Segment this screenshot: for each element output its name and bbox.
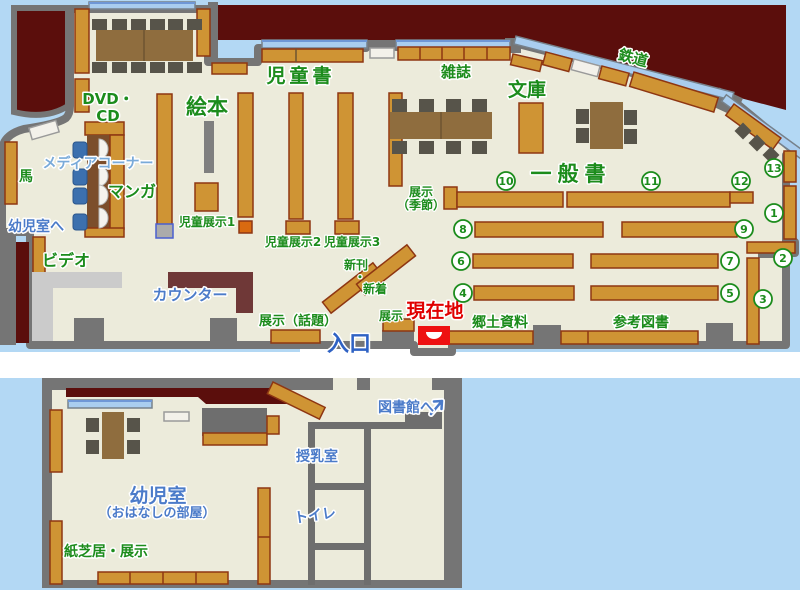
bunko-shelf: [519, 103, 543, 153]
topic-display-shelf: [271, 330, 320, 343]
wall-bump-2: [210, 318, 237, 342]
closed-area-left: [14, 8, 68, 115]
label-dvd-cd-line2: CD: [96, 107, 119, 125]
window: [68, 400, 152, 408]
bookshelf: [289, 93, 303, 219]
display-stand: [239, 221, 252, 233]
label-topic-display: 展示（話題）: [259, 313, 337, 329]
label-to-library: 図書館へ: [378, 399, 434, 416]
svg-text:11: 11: [643, 175, 658, 188]
shelf-number-13: 13: [765, 159, 783, 177]
label-new-books-2: 新着: [363, 281, 387, 296]
closed-strip: [66, 388, 198, 397]
label-horse: 馬: [19, 169, 33, 185]
svg-text:2: 2: [779, 252, 787, 265]
display-table-2: [286, 221, 310, 234]
center-shelf: [258, 488, 270, 584]
current-location-marker: [418, 326, 450, 345]
label-infant-room: 幼児室: [129, 484, 186, 507]
main-floor: DVD・ CD 絵本 児童書 雑誌 文庫 鉄道 一般書 メディアコーナー マンガ…: [0, 2, 800, 357]
svg-text:4: 4: [459, 287, 467, 300]
shelf-number-8: 8: [454, 220, 472, 238]
label-display: 展示: [379, 309, 403, 323]
shelf-number-9: 9: [735, 220, 753, 238]
label-to-infant-room: 幼児室へ: [8, 218, 64, 235]
svg-text:7: 7: [726, 255, 734, 268]
display-table-3: [335, 221, 359, 234]
bookshelf: [212, 63, 247, 74]
svg-text:3: 3: [759, 293, 767, 306]
bookshelf: [197, 9, 210, 56]
bookshelf: [203, 433, 267, 445]
shelf-number-11: 11: [642, 172, 660, 190]
label-magazines: 雑誌: [440, 63, 471, 81]
shelf-number-1: 1: [765, 204, 783, 222]
wall-step: [363, 40, 398, 48]
shelf-number-7: 7: [721, 252, 739, 270]
reference-shelves: [561, 331, 698, 344]
bookshelf: [75, 9, 89, 73]
label-video: ビデオ: [42, 251, 90, 270]
label-kamishibai-display: 紙芝居・展示: [64, 543, 148, 560]
shelf-number-3: 3: [754, 290, 772, 308]
label-seasonal-display-1: 展示: [409, 185, 433, 199]
label-dvd-cd-line1: DVD・: [82, 90, 134, 108]
annex-floor: 幼児室 （おはなしの部屋） 紙芝居・展示 授乳室 トイレ 図書館へ: [42, 378, 462, 588]
bookshelf: [157, 94, 172, 226]
label-nursing-room: 授乳室: [296, 448, 338, 465]
label-media-corner: メディアコーナー: [42, 155, 153, 172]
window: [89, 2, 195, 9]
display-table-1: [195, 183, 218, 211]
label-bunko: 文庫: [508, 78, 546, 101]
bench: [164, 412, 189, 421]
svg-text:5: 5: [726, 287, 734, 300]
label-counter: カウンター: [152, 286, 227, 304]
svg-text:9: 9: [740, 223, 748, 236]
shelf-number-4: 4: [454, 284, 472, 302]
shelf-number-5: 5: [721, 284, 739, 302]
wall-bump-5: [706, 323, 733, 342]
shelf-number-10: 10: [497, 172, 515, 190]
wall-bump-4: [533, 325, 561, 342]
svg-text:12: 12: [733, 175, 748, 188]
story-table: [102, 412, 124, 459]
label-current-location: 現在地: [406, 299, 463, 322]
shelf-number-12: 12: [732, 172, 750, 190]
label-manga: マンガ: [108, 182, 156, 201]
label-local-materials: 郷土資料: [472, 314, 528, 331]
structure-block: [202, 408, 267, 436]
wall-bump-3: [382, 330, 414, 343]
bookshelf: [238, 93, 253, 217]
svg-text:13: 13: [766, 162, 781, 175]
closed-bar-left-bottom: [16, 242, 29, 343]
bookshelf: [267, 416, 279, 434]
local-materials-shelf: [448, 331, 533, 344]
bookshelf: [5, 142, 17, 204]
label-children-display-1: 児童展示1: [178, 214, 235, 229]
library-floor-map: DVD・ CD 絵本 児童書 雑誌 文庫 鉄道 一般書 メディアコーナー マンガ…: [0, 0, 800, 590]
shelf-number-6: 6: [452, 252, 470, 270]
label-picture-books: 絵本: [186, 95, 228, 119]
svg-text:10: 10: [498, 175, 514, 188]
svg-text:1: 1: [770, 207, 778, 220]
label-children-display-2: 児童展示2: [264, 234, 321, 249]
bookshelf: [50, 410, 62, 472]
wall-left-bottom: [0, 232, 16, 345]
window: [262, 40, 367, 48]
wall-bump-1: [74, 318, 104, 342]
wall-notch: [333, 378, 357, 391]
bottom-shelves: [98, 572, 228, 584]
bookshelf: [338, 93, 353, 219]
annex-entrance: [370, 378, 432, 392]
label-reference-books: 参考図書: [613, 314, 669, 331]
svg-text:8: 8: [459, 223, 467, 236]
label-childrens-books: 児童書: [265, 64, 335, 87]
shelf-number-2: 2: [774, 249, 792, 267]
pillar: [204, 121, 214, 173]
kiosk: [156, 224, 173, 238]
label-entrance: 入口: [327, 332, 371, 357]
label-general-books: 一般書: [531, 162, 612, 186]
label-story-room: （おはなしの部屋）: [98, 505, 215, 521]
label-seasonal-display-2: （季節）: [397, 197, 445, 212]
label-children-display-3: 児童展示3: [323, 234, 380, 249]
reading-table: [590, 102, 623, 149]
kamishibai-shelf: [50, 521, 62, 584]
media-corner-desk: [85, 122, 124, 237]
svg-text:6: 6: [457, 255, 465, 268]
